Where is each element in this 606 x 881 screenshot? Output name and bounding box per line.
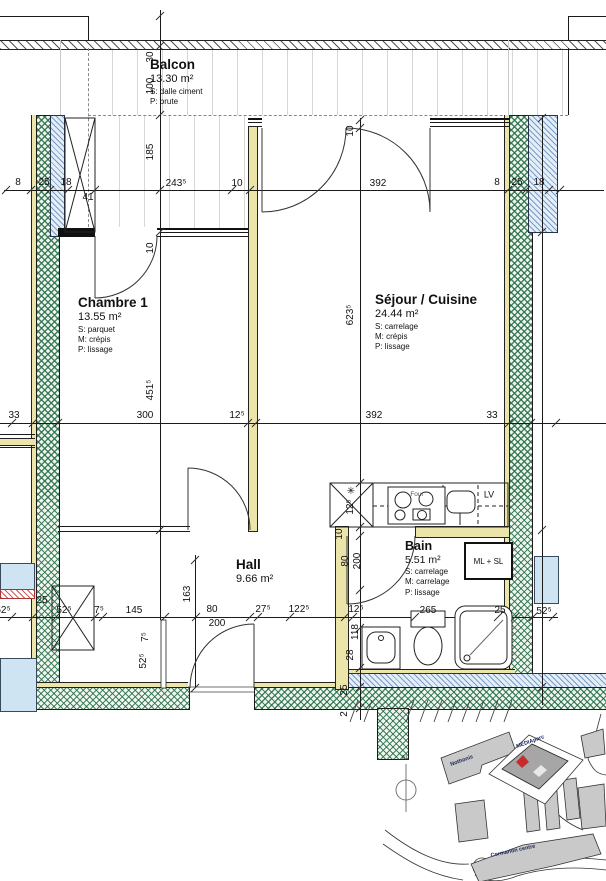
dishwasher-label: LV [484,491,494,500]
dimension-label: 25 [511,178,522,188]
room-finish: S: dalle ciment [150,87,202,97]
dimension-label: 10 [146,242,156,253]
dimension-label: 12⁵ [348,605,363,615]
site-plan: N Nothonis MEDIAparc Cormanon centre [383,712,606,881]
dimension-label: 7⁵ [94,606,104,616]
fridge-star-icon: ✳ [347,487,355,497]
dimension-label: 265 [420,606,437,616]
dimension-label: 392 [366,411,383,421]
building [578,784,606,829]
dimension-label: 25 [340,684,350,695]
dimension-label: 33 [486,411,497,421]
dimension-label: 52⁵ [56,606,71,616]
room-finish: P: lissage [405,588,449,598]
room-area: 24.44 m² [375,308,477,322]
room-finish: S: parquet [78,325,148,335]
dimension-label: 163 [183,586,193,603]
room-area: 13.30 m² [150,73,202,87]
dimension-label: 10 [346,125,356,136]
room-finish: P: brute [150,97,202,107]
dimension-label: 18 [533,178,544,188]
sink [447,491,475,525]
entry-threshold [161,620,254,692]
room-finish: S: carrelage [405,567,449,577]
building [563,778,580,820]
oven-label: Four [410,492,423,499]
dimension-label: 122⁵ [289,605,310,615]
building [455,800,488,842]
dimension-label: 7⁵ [141,632,151,642]
dimension-label: 28 [346,649,356,660]
room-finish: P: lissage [375,342,477,352]
dimension-label: 25 [494,606,505,616]
dimension-label: 8 [494,178,500,188]
dimension-label: 200 [209,619,226,629]
room-name: Balcon [150,58,202,73]
room-area: 5.51 m² [405,554,449,567]
dimension-label: 10 [231,179,242,189]
dimension-label: 30 [146,51,156,62]
building [581,729,605,758]
washer-dryer-box: ML + SL [464,542,513,580]
room-name: Hall [236,558,273,573]
toilet [411,611,445,665]
dimension-label: 12⁵ [346,499,356,514]
dimension-label: 100 [146,78,156,95]
room-area: 13.55 m² [78,311,148,325]
dimension-label: 243⁵ [166,179,187,189]
dimension-label: 27⁵ [255,605,270,615]
room-finish: P: lissage [78,345,148,355]
dimension-label: 80 [341,555,351,566]
north-label: N [402,755,407,762]
dimension-label: 623⁵ [346,305,356,326]
dimension-label: 2 [340,711,350,717]
room-sejour: Séjour / Cuisine 24.44 m² S: carrelage M… [375,293,477,353]
dimension-label: 80 [206,605,217,615]
dimension-label: 52⁵ [0,606,11,616]
washbasin [362,627,400,669]
dimension-label: 118 [351,624,361,640]
room-name: Chambre 1 [78,296,148,311]
dimension-label: 18 [60,178,71,188]
floor-plan-sheet: Balcon 13.30 m² S: dalle ciment P: brute… [0,0,606,881]
dimension-label: 33 [8,411,19,421]
washer-dryer-label: ML + SL [474,557,504,566]
room-finish: S: carrelage [375,322,477,332]
dimension-label: 145 [126,606,143,616]
dimension-label: 12⁵ [229,411,244,421]
room-finish: M: crépis [375,332,477,342]
room-chambre: Chambre 1 13.55 m² S: parquet M: crépis … [78,296,148,356]
room-hall: Hall 9.66 m² [236,558,273,587]
dimension-label: 451⁵ [146,380,156,401]
room-area: 9.66 m² [236,573,273,587]
room-name: Bain [405,540,449,554]
dimension-label: 392 [370,179,387,189]
dimension-label: 25 [38,178,49,188]
room-finish: M: crépis [78,335,148,345]
dimension-label: 200 [353,553,363,570]
room-name: Séjour / Cuisine [375,293,477,308]
dimension-label: 52⁵ [139,653,149,668]
dimension-label: 52⁵ [536,607,551,617]
dimension-label: 8 [15,178,21,188]
dimension-label: 10 [335,528,345,539]
room-balcon: Balcon 13.30 m² S: dalle ciment P: brute [150,58,202,107]
north-arrow [396,764,416,812]
room-bain: Bain 5.51 m² S: carrelage M: carrelage P… [405,540,449,598]
dimension-label: 185 [146,144,156,161]
dimension-label: 25 [36,596,47,606]
room-finish: M: carrelage [405,577,449,587]
dimension-label: 41 [82,193,93,203]
dimension-label: 300 [137,411,154,421]
